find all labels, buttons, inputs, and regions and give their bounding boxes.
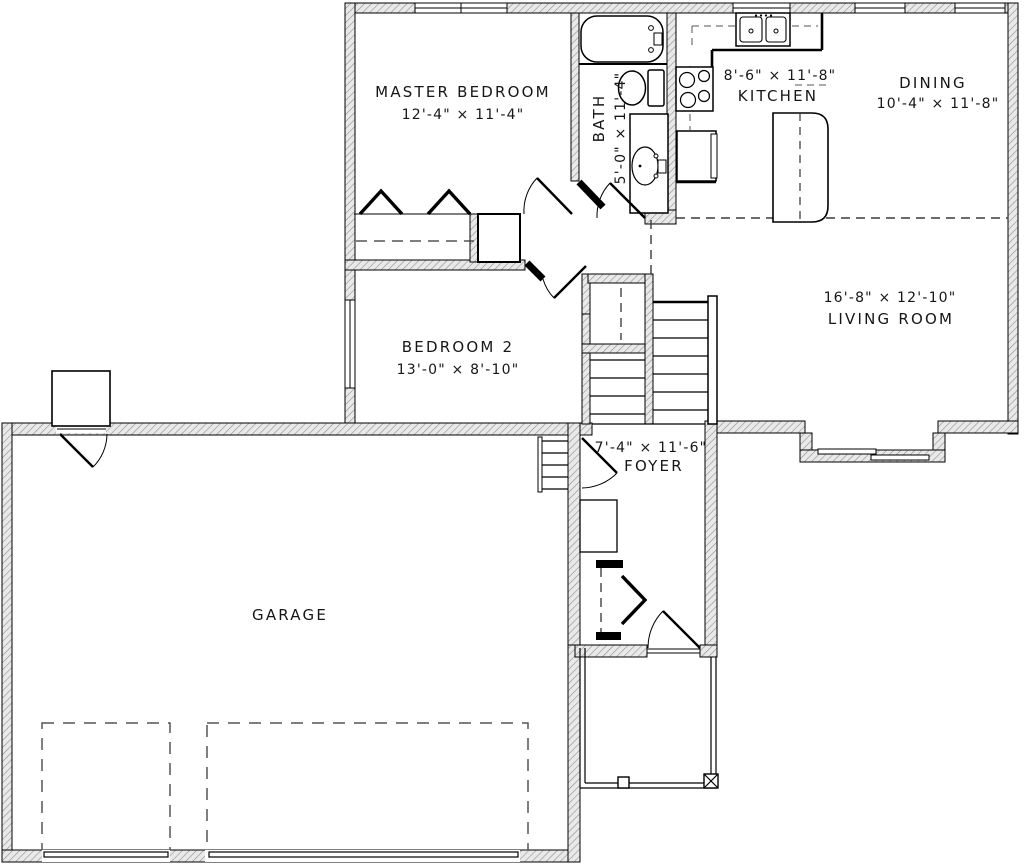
svg-text:FOYER: FOYER bbox=[624, 457, 684, 475]
refrigerator bbox=[677, 131, 717, 181]
ceiling-break-lines bbox=[651, 218, 1008, 274]
garage-bay-double bbox=[207, 723, 528, 850]
floor-plan-page: MASTER BEDROOM 12'-4" × 11'-4" BATH 5'-0… bbox=[0, 0, 1024, 864]
label-dining: DINING 10'-4" × 11'-8" bbox=[877, 74, 1000, 112]
master-closet bbox=[354, 191, 520, 262]
porch bbox=[580, 648, 718, 788]
svg-text:16'-8" × 12'-10": 16'-8" × 12'-10" bbox=[824, 290, 957, 306]
garage-bay-single bbox=[42, 723, 170, 850]
foyer-closet-upper bbox=[580, 500, 617, 552]
svg-text:BEDROOM 2: BEDROOM 2 bbox=[402, 338, 514, 356]
garage-bays bbox=[42, 723, 528, 850]
window-dining-1 bbox=[855, 3, 905, 13]
door-front-entry bbox=[647, 611, 700, 653]
label-master-bedroom: MASTER BEDROOM 12'-4" × 11'-4" bbox=[375, 83, 551, 123]
label-kitchen: 8'-6" × 11'-8" KITCHEN bbox=[724, 68, 837, 105]
label-living-room: 16'-8" × 12'-10" LIVING ROOM bbox=[824, 290, 957, 328]
svg-text:GARAGE: GARAGE bbox=[252, 606, 328, 624]
window-dining-2 bbox=[955, 3, 1005, 13]
svg-text:KITCHEN: KITCHEN bbox=[738, 87, 818, 105]
stairs-down bbox=[590, 360, 645, 414]
bifold-door bbox=[622, 576, 645, 624]
window-kitchen bbox=[733, 3, 790, 13]
range-stove bbox=[676, 67, 713, 111]
vanity-sink bbox=[630, 114, 668, 213]
svg-text:12'-4" × 11'-4": 12'-4" × 11'-4" bbox=[402, 107, 525, 123]
svg-text:LIVING ROOM: LIVING ROOM bbox=[828, 310, 954, 328]
svg-text:7'-4" × 11'-6": 7'-4" × 11'-6" bbox=[595, 440, 708, 456]
door-master-bedroom bbox=[524, 178, 572, 214]
svg-text:5'-0" × 11'-4": 5'-0" × 11'-4" bbox=[613, 72, 629, 185]
kitchen-sink bbox=[736, 13, 790, 46]
window-master-bedroom bbox=[415, 3, 507, 13]
angled-wall-stubs bbox=[527, 182, 603, 279]
stair-railing bbox=[708, 296, 717, 424]
foyer-closets bbox=[580, 500, 645, 640]
hall-cabinet bbox=[478, 214, 520, 262]
svg-text:13'-0" × 8'-10": 13'-0" × 8'-10" bbox=[397, 362, 520, 378]
kitchen-island bbox=[773, 113, 828, 222]
bifold-doors bbox=[360, 191, 470, 214]
label-bath: BATH 5'-0" × 11'-4" bbox=[590, 72, 629, 185]
stairs-up bbox=[653, 302, 708, 410]
svg-text:DINING: DINING bbox=[899, 74, 967, 92]
stoop bbox=[52, 371, 110, 426]
kitchen-fixtures bbox=[676, 13, 828, 222]
label-bedroom-2: BEDROOM 2 13'-0" × 8'-10" bbox=[397, 338, 520, 378]
label-foyer: 7'-4" × 11'-6" FOYER bbox=[595, 440, 708, 475]
porch-corner-post bbox=[704, 774, 718, 788]
label-garage: GARAGE bbox=[252, 606, 328, 624]
svg-text:MASTER BEDROOM: MASTER BEDROOM bbox=[375, 83, 551, 101]
stairs-down-lower bbox=[538, 437, 568, 492]
garage-doors bbox=[42, 850, 520, 862]
doors bbox=[56, 178, 700, 653]
bathtub bbox=[581, 16, 663, 62]
svg-text:BATH: BATH bbox=[590, 94, 608, 143]
exterior-walls bbox=[2, 3, 1018, 862]
door-bedroom-2 bbox=[543, 266, 586, 298]
window-bedroom-2 bbox=[345, 300, 355, 388]
porch-post bbox=[618, 777, 629, 788]
door-garage-stoop bbox=[56, 425, 107, 467]
svg-text:8'-6" × 11'-8": 8'-6" × 11'-8" bbox=[724, 68, 837, 84]
garage-features bbox=[42, 723, 528, 862]
floor-plan-drawing: MASTER BEDROOM 12'-4" × 11'-4" BATH 5'-0… bbox=[0, 0, 1024, 864]
svg-text:10'-4" × 11'-8": 10'-4" × 11'-8" bbox=[877, 96, 1000, 112]
